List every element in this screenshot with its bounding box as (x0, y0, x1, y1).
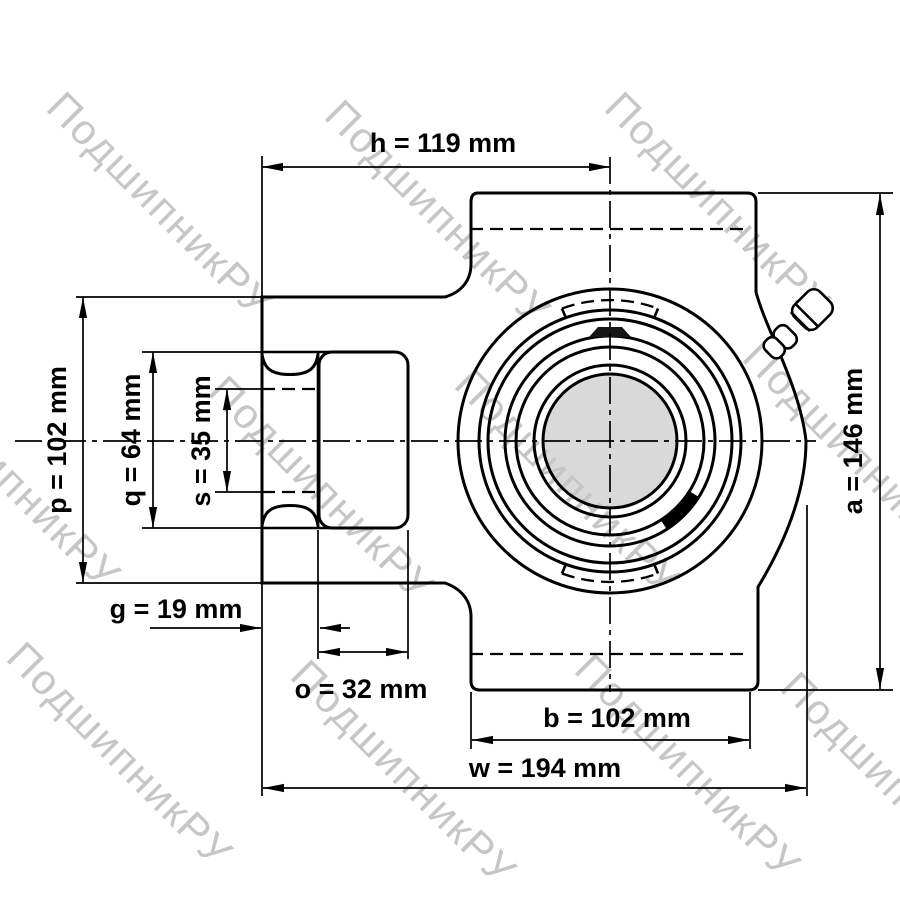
dim-label-o: o = 32 mm (295, 674, 428, 704)
technical-drawing-page: ПодшипникРУ ПодшипникРУ ПодшипникРУ Подш… (0, 0, 900, 900)
dim-label-p: p = 102 mm (42, 366, 72, 514)
dim-label-w: w = 194 mm (468, 753, 621, 783)
watermark-text: ПодшипникРУ (0, 633, 242, 877)
dim-label-b: b = 102 mm (543, 703, 691, 733)
arc-hook (562, 565, 566, 574)
arc-hook (655, 309, 659, 318)
arc-hook (562, 309, 566, 318)
dim-label-s: s = 35 mm (186, 375, 216, 506)
dim-label-a: a = 146 mm (838, 368, 868, 514)
slot-relief-top (262, 354, 318, 375)
watermark-text: ПодшипникРУ (734, 333, 900, 577)
watermark-text: ПодшипникРУ (38, 83, 282, 327)
bearing-unit-drawing: ПодшипникРУ ПодшипникРУ ПодшипникРУ Подш… (0, 0, 900, 900)
dim-label-h: h = 119 mm (370, 128, 516, 158)
dim-label-q: q = 64 mm (116, 374, 146, 507)
slot-relief-bottom (262, 506, 318, 527)
dim-label-g: g = 19 mm (110, 594, 243, 624)
